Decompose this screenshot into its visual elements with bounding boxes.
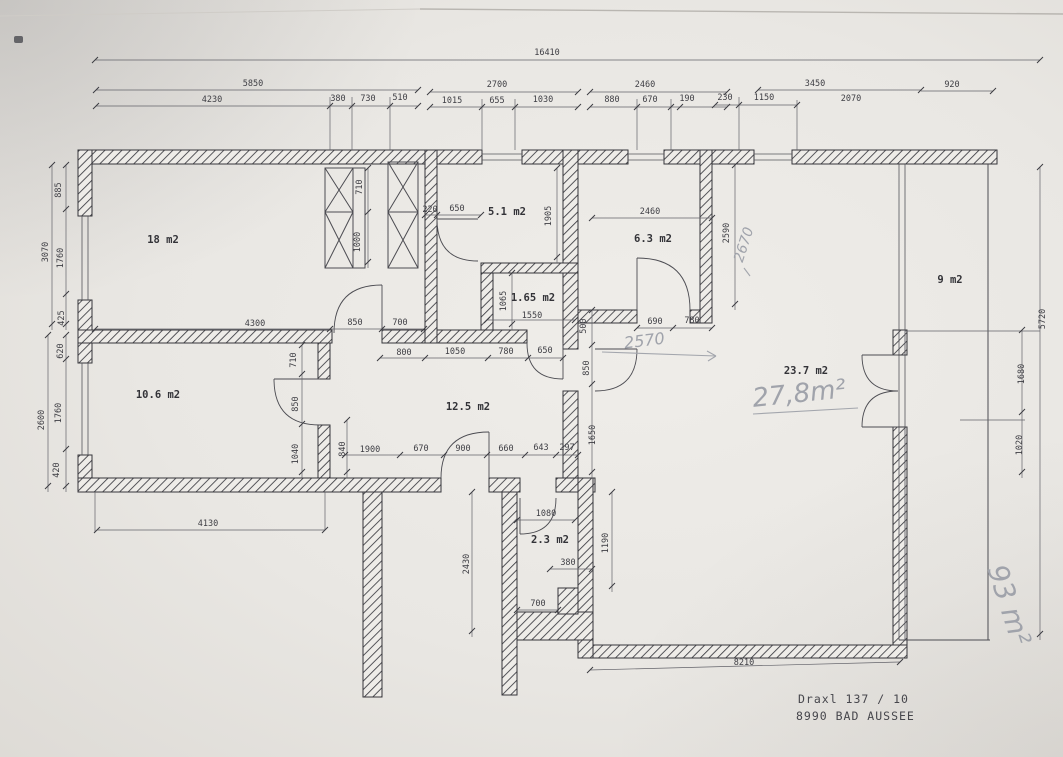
dimension-label: 2700: [487, 80, 507, 90]
room-area-label: 10.6 m2: [136, 389, 180, 401]
wardrobes: [325, 162, 418, 268]
dimension-label: 380: [560, 558, 575, 568]
dimension-label: 297: [559, 443, 574, 453]
room-area-label: 1.65 m2: [511, 292, 555, 304]
dimension-label: 885: [54, 182, 64, 197]
dimension-label: 16410: [534, 48, 560, 58]
dimension-label: 840: [338, 441, 348, 456]
handwritten-annotation: 93 m²: [981, 560, 1038, 649]
dimension-label: 700: [392, 318, 407, 328]
dimension-label: 1190: [601, 533, 611, 553]
dimension-label: 650: [537, 346, 552, 356]
dimension-label: 710: [355, 179, 365, 194]
dimension-label: 420: [52, 462, 62, 477]
room-area-label: 18 m2: [147, 234, 179, 246]
dimension-label: 3070: [41, 242, 51, 262]
dimension-label: 655: [489, 96, 504, 106]
dimension-label: 1760: [54, 403, 64, 423]
dimension-label: 1905: [544, 206, 554, 226]
handwritten-annotation: 27,8m²: [751, 374, 847, 414]
dimension-label: 2070: [841, 94, 861, 104]
dimension-label: 1900: [360, 445, 380, 455]
dimension-label: 1680: [1017, 364, 1027, 384]
dimension-label: 780: [498, 347, 513, 357]
plan-owner-label: Draxl 137 / 10: [798, 692, 909, 706]
floorplan-canvas: 1641058502700246034509204230380730510101…: [0, 0, 1063, 757]
dimension-label: 220: [422, 205, 437, 215]
walls: [78, 150, 997, 697]
dimension-label: 230: [717, 93, 732, 103]
room-area-label: 23.7 m2: [784, 365, 828, 377]
dimension-label: 1020: [1015, 435, 1025, 455]
dimension-label: 2460: [635, 80, 655, 90]
dimension-label: 510: [392, 93, 407, 103]
dimension-label: 2590: [722, 223, 732, 243]
dimension-label: 1030: [533, 95, 553, 105]
dimension-label: 710: [289, 352, 299, 367]
dimension-label: 850: [291, 396, 301, 411]
dimension-label: 500: [579, 318, 589, 333]
room-area-label: 6.3 m2: [634, 233, 672, 245]
dimension-label: 730: [360, 94, 375, 104]
dimension-label: 1760: [56, 248, 66, 268]
dimension-label: 425: [57, 310, 67, 325]
room-area-label: 12.5 m2: [446, 401, 490, 413]
dimension-label: 690: [647, 317, 662, 327]
dimension-label: 850: [347, 318, 362, 328]
dimension-label: 4300: [245, 319, 265, 329]
scanned-floorplan: 1641058502700246034509204230380730510101…: [0, 0, 1063, 757]
dimension-label: 1015: [442, 96, 462, 106]
room-area-label: 5.1 m2: [488, 206, 526, 218]
dimension-label: 700: [530, 599, 545, 609]
dimension-label: 1040: [291, 444, 301, 464]
dimension-label: 670: [413, 444, 428, 454]
room-area-label: 9 m2: [937, 274, 962, 286]
dimension-label: 1000: [353, 232, 363, 252]
dimension-label: 670: [642, 95, 657, 105]
dimension-label: 1550: [522, 311, 542, 321]
dimension-label: 2430: [462, 554, 472, 574]
dimension-label: 4130: [198, 519, 218, 529]
dimension-label: 5720: [1038, 309, 1048, 329]
dimension-label: 660: [498, 444, 513, 454]
dimension-label: 1050: [445, 347, 465, 357]
windows: [82, 154, 990, 640]
plan-address-label: 8990 BAD AUSSEE: [796, 709, 915, 723]
dimension-label: 8210: [734, 658, 754, 668]
dimension-label: 780: [684, 316, 699, 326]
scan-artifacts: [0, 9, 1063, 43]
dimension-label: 1650: [588, 425, 598, 445]
dimension-label: 920: [944, 80, 959, 90]
dimension-label: 850: [582, 360, 592, 375]
dimension-label: 900: [455, 444, 470, 454]
dimension-label: 190: [679, 94, 694, 104]
room-area-label: 2.3 m2: [531, 534, 569, 546]
dimension-label: 380: [330, 94, 345, 104]
dimension-label: 800: [396, 348, 411, 358]
dimension-label: 643: [533, 443, 548, 453]
dimension-label: 4230: [202, 95, 222, 105]
dimension-label: 2460: [640, 207, 660, 217]
dimension-label: 5850: [243, 79, 263, 89]
handwritten-annotation: 2570: [623, 329, 666, 353]
dimension-label: 3450: [805, 79, 825, 89]
dimension-label: 880: [604, 95, 619, 105]
dimension-label: 1150: [754, 93, 774, 103]
dimension-label: 2600: [37, 410, 47, 430]
dimension-label: 1080: [536, 509, 556, 519]
dimension-label: 1065: [499, 291, 509, 311]
dimension-label: 620: [56, 343, 66, 358]
dimension-label: 650: [449, 204, 464, 214]
